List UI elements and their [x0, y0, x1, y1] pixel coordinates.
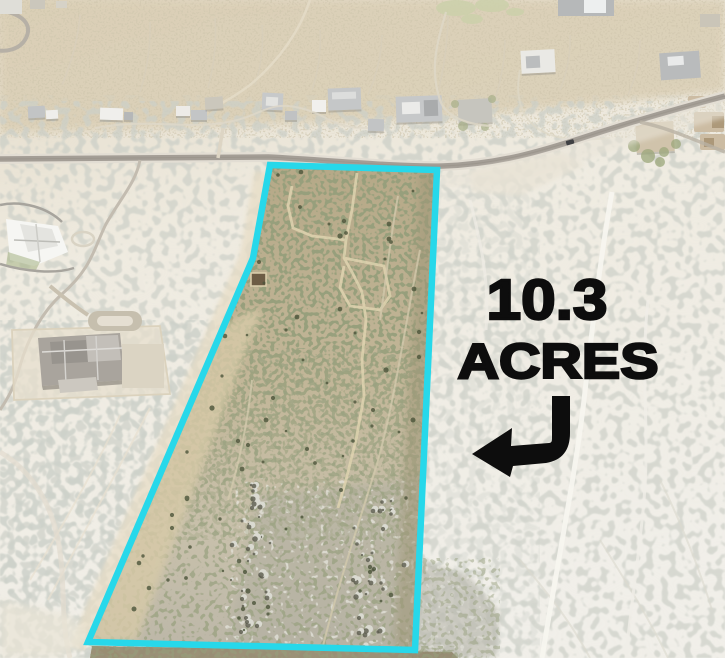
svg-text:ACRES: ACRES — [458, 335, 659, 389]
svg-text:10.3: 10.3 — [487, 268, 608, 332]
